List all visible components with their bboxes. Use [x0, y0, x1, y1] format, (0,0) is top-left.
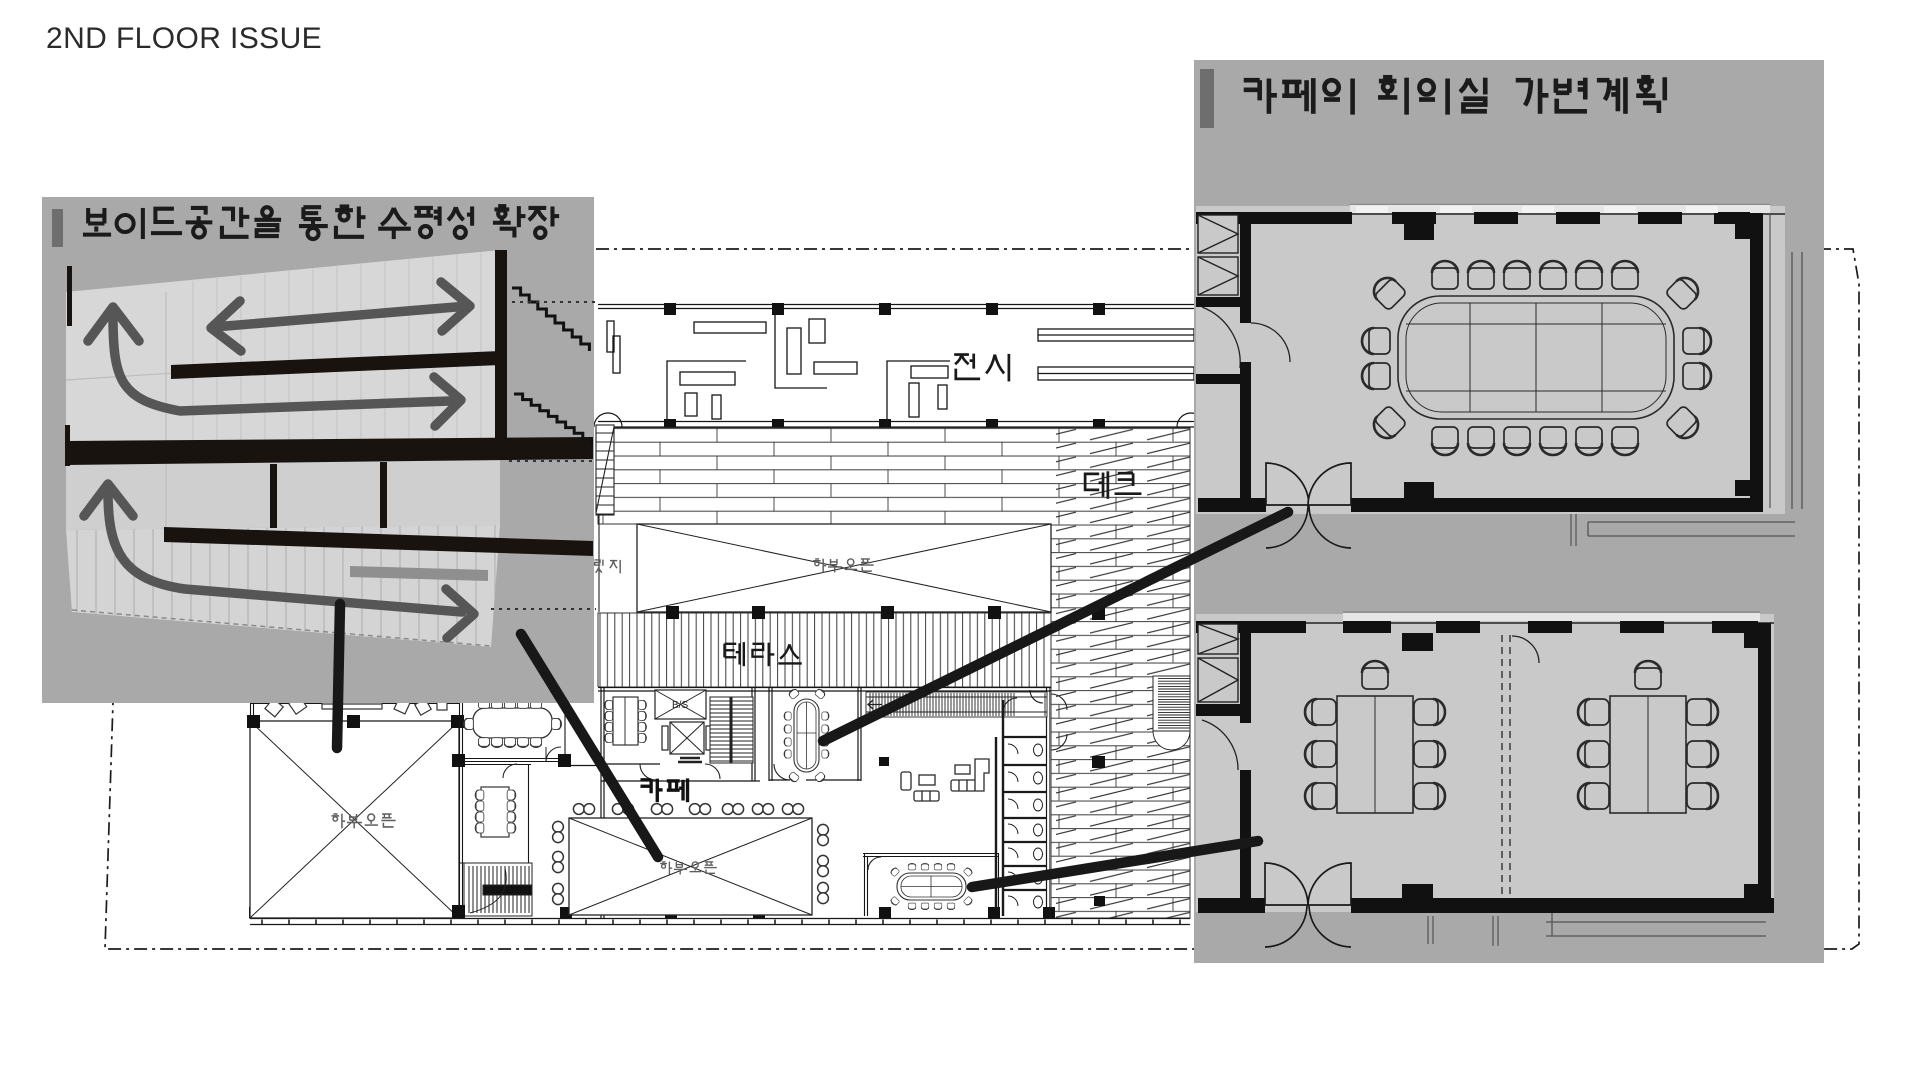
svg-text:B/S: B/S: [672, 700, 688, 711]
svg-text:2ND FLOOR ISSUE: 2ND FLOOR ISSUE: [46, 22, 322, 55]
